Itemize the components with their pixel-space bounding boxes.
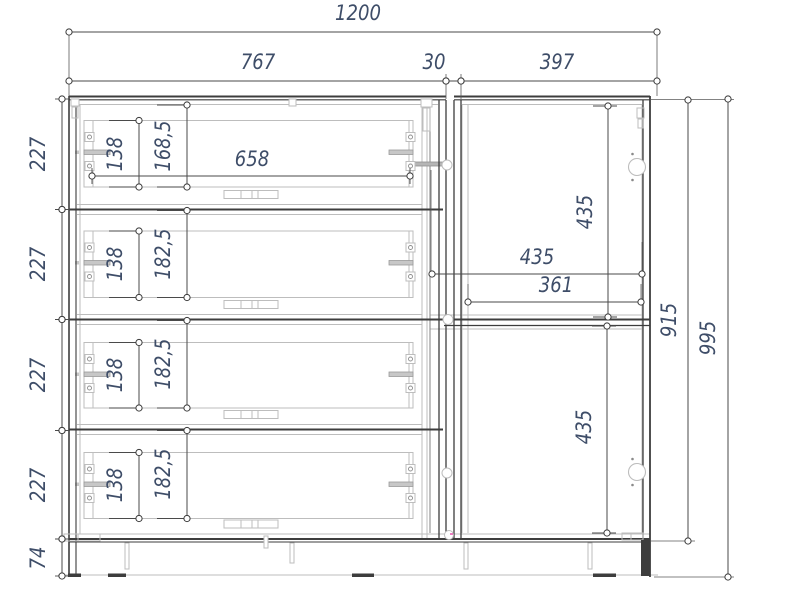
dimension-door-inner-width: 361 bbox=[465, 273, 644, 305]
dimension-label-bottom-door-height: 435 bbox=[572, 410, 596, 445]
dimension-label-door-width: 435 bbox=[520, 245, 555, 269]
carcass-light-lines bbox=[58, 104, 658, 575]
dimension-label-drawer-2-height: 227 bbox=[26, 246, 50, 281]
dimension-drawer-2-height: 227 bbox=[26, 206, 70, 322]
dimension-label-drawer-4-height: 227 bbox=[26, 467, 50, 502]
dimension-label-module-gap-width: 30 bbox=[423, 50, 446, 74]
dimension-label-door-module-width: 397 bbox=[540, 50, 575, 74]
dimension-drawer-3-height: 227 bbox=[26, 316, 70, 433]
dimension-label-drawer-inner-width: 658 bbox=[235, 147, 270, 171]
dimension-drawer-inner-width: 658 bbox=[89, 147, 413, 184]
dimension-bottom-door-height: 435 bbox=[572, 323, 616, 536]
dimension-label-drawer-4-box-height: 138 bbox=[103, 468, 127, 503]
dimension-carcass-height: 915 bbox=[657, 97, 691, 544]
dimension-label-drawer-3-height: 227 bbox=[26, 357, 50, 392]
dimension-drawer-4-clear-height: 182,5 bbox=[151, 427, 190, 521]
dimension-drawer-4-box-height: 138 bbox=[103, 449, 142, 521]
dimension-module-gap-width: 30 bbox=[423, 50, 465, 84]
technical-drawing-page: 1200767303976584353612272272272277413813… bbox=[0, 0, 800, 600]
dimension-plinth-height: 74 bbox=[26, 536, 70, 579]
dimension-label-overall-width: 1200 bbox=[335, 1, 381, 25]
dimension-top-door-height: 435 bbox=[573, 103, 617, 320]
dimension-drawer-3-box-height: 138 bbox=[103, 339, 142, 411]
dimension-label-drawer-1-height: 227 bbox=[26, 136, 50, 171]
dimension-label-top-door-height: 435 bbox=[573, 195, 597, 230]
dimension-label-drawer-module-width: 767 bbox=[241, 50, 276, 74]
dimension-label-drawer-4-clear-height: 182,5 bbox=[151, 449, 175, 500]
dimension-label-drawer-1-clear-height: 168,5 bbox=[151, 121, 175, 172]
dimension-overall-width: 1200 bbox=[66, 1, 660, 35]
dimension-label-drawer-1-box-height: 138 bbox=[103, 137, 127, 172]
dimension-door-module-width: 397 bbox=[458, 50, 660, 84]
dimension-label-plinth-height: 74 bbox=[26, 547, 50, 570]
dimension-label-drawer-3-clear-height: 182,5 bbox=[151, 339, 175, 390]
hardware-fills bbox=[75, 150, 443, 487]
dimension-drawer-1-height: 227 bbox=[26, 96, 70, 213]
dimension-drawer-module-width: 767 bbox=[66, 50, 449, 84]
dimension-label-carcass-height: 915 bbox=[657, 303, 681, 338]
dimension-drawer-3-clear-height: 182,5 bbox=[151, 317, 190, 411]
dimension-overall-height: 995 bbox=[696, 96, 731, 580]
dimensions: 1200767303976584353612272272272277413813… bbox=[26, 1, 731, 580]
dimension-drawer-2-clear-height: 182,5 bbox=[151, 207, 190, 300]
cabinet-technical-drawing: 1200767303976584353612272272272277413813… bbox=[0, 0, 800, 600]
dimension-label-drawer-2-box-height: 138 bbox=[103, 247, 127, 282]
dimension-drawer-1-box-height: 138 bbox=[103, 117, 142, 190]
dimension-drawer-4-height: 227 bbox=[26, 427, 70, 542]
fittings bbox=[85, 133, 454, 540]
dimension-label-drawer-3-box-height: 138 bbox=[103, 358, 127, 393]
dimension-label-door-inner-width: 361 bbox=[539, 273, 574, 297]
dimension-drawer-2-box-height: 138 bbox=[103, 228, 142, 301]
dimension-label-overall-height: 995 bbox=[696, 321, 720, 356]
dimension-drawer-1-clear-height: 168,5 bbox=[151, 102, 190, 190]
dimension-label-drawer-2-clear-height: 182,5 bbox=[151, 229, 175, 280]
